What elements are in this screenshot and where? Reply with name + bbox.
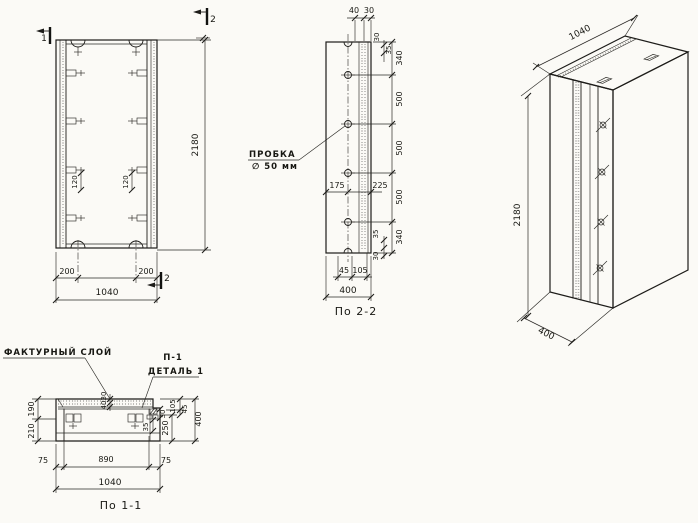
section-cut-mark-2-top: 2 bbox=[193, 8, 216, 41]
dim-loop-offset-left: 200 bbox=[59, 267, 74, 276]
plug-label-line1: ПРОБКА bbox=[249, 150, 296, 160]
dim-section-width: 400 bbox=[339, 286, 356, 296]
detail-name-label: ДЕТАЛЬ 1 bbox=[148, 367, 204, 377]
facing-layer-callout: ФАКТУРНЫЙ СЛОЙ bbox=[3, 346, 112, 399]
dim-bottom-75-right: 75 bbox=[161, 456, 171, 465]
dim-bottom-45: 45 bbox=[339, 266, 349, 275]
dim-layer-40: 40 bbox=[100, 401, 108, 410]
dim-left-210: 210 bbox=[27, 423, 36, 438]
dim-right-45: 45 bbox=[181, 405, 189, 414]
dim-mid-175: 175 bbox=[329, 181, 344, 190]
section-cut-mark-1: 1 bbox=[36, 27, 50, 44]
dim-right-total: 400 bbox=[194, 411, 203, 426]
section-1-1-layer-dims: 30 40 bbox=[100, 392, 113, 411]
dim-edge-top-30: 30 bbox=[373, 33, 381, 42]
iso-dims: 1040 2180 400 bbox=[513, 15, 638, 346]
dim-right-105: 105 bbox=[169, 399, 177, 412]
dim-layer-30: 30 bbox=[100, 392, 108, 401]
section-mark-1-label: 1 bbox=[41, 34, 47, 44]
dim-bottom-75-left: 75 bbox=[38, 456, 48, 465]
dim-detail-30: 30 bbox=[159, 410, 167, 419]
section-mark-2-bottom-label: 2 bbox=[164, 274, 170, 284]
dim-left-190: 190 bbox=[27, 401, 36, 416]
drawing-svg: 120 120 1 2 2 bbox=[0, 0, 698, 523]
detail-ref-label: П-1 bbox=[163, 353, 183, 363]
dim-layer-30: 30 bbox=[364, 6, 374, 15]
dim-right-250: 250 bbox=[161, 420, 170, 435]
isometric-view: 1040 2180 400 bbox=[513, 15, 688, 346]
chain-dim-340-top: 340 bbox=[395, 50, 404, 65]
section-2-2-top-dims: 40 30 30 35 bbox=[347, 6, 393, 62]
section-1-1-bottom-dims: 75 890 75 1040 bbox=[38, 436, 171, 493]
section-2-2-view: ПРОБКА ∅ 50 мм 40 30 30 35 bbox=[248, 6, 404, 318]
dim-front-width: 1040 bbox=[96, 288, 119, 298]
section-2-2-body bbox=[326, 34, 371, 262]
dim-iso-width: 1040 bbox=[568, 23, 593, 42]
iso-plug-marks bbox=[593, 118, 610, 275]
dim-layer-40: 40 bbox=[349, 6, 359, 15]
dim-bottom-105: 105 bbox=[352, 266, 367, 275]
section-1-1-caption: По 1-1 bbox=[100, 499, 142, 512]
section-1-1-left-dims: 190 210 bbox=[27, 396, 56, 444]
dim-bottom-total: 1040 bbox=[99, 478, 122, 488]
section-2-2-bottom-edge-dims: 35 30 bbox=[372, 230, 387, 261]
iso-joint-groove bbox=[573, 80, 598, 304]
dim-edge-bottom-35: 35 bbox=[372, 230, 380, 239]
section-2-2-bottom-dims: 45 105 400 bbox=[323, 253, 374, 301]
dim-iso-depth: 400 bbox=[536, 326, 556, 343]
front-view-bottom-dims: 200 200 1040 bbox=[53, 252, 160, 303]
dim-front-height: 2180 bbox=[191, 133, 201, 156]
front-view-height-dim: 2180 bbox=[157, 37, 211, 253]
section-2-2-right-chain: 340 500 500 500 340 bbox=[352, 39, 404, 256]
plug-callout: ПРОБКА ∅ 50 мм bbox=[248, 126, 345, 172]
front-view: 120 120 1 2 2 bbox=[36, 8, 216, 303]
dim-edge-bottom-30: 30 bbox=[372, 252, 380, 261]
dim-lug-left: 120 bbox=[71, 175, 79, 188]
dim-lug-right: 120 bbox=[122, 175, 130, 188]
plug-label-line2: ∅ 50 мм bbox=[252, 162, 298, 172]
front-view-lug-dims: 120 120 bbox=[71, 170, 135, 193]
facing-layer-label: ФАКТУРНЫЙ СЛОЙ bbox=[4, 346, 112, 358]
dim-loop-offset-right: 200 bbox=[138, 267, 153, 276]
front-view-side-lugs bbox=[66, 70, 147, 221]
dim-mid-225: 225 bbox=[372, 181, 387, 190]
chain-dim-340-bottom: 340 bbox=[395, 229, 404, 244]
section-mark-2-top-label: 2 bbox=[210, 15, 216, 25]
chain-dim-500-1: 500 bbox=[395, 91, 404, 106]
dim-bottom-890: 890 bbox=[98, 455, 113, 464]
section-2-2-mid-dims: 175 225 bbox=[323, 181, 388, 195]
blueprint-panel-drawing: 120 120 1 2 2 bbox=[0, 0, 698, 523]
iso-panel-body bbox=[550, 36, 688, 308]
chain-dim-500-2: 500 bbox=[395, 140, 404, 155]
section-2-2-caption: По 2-2 bbox=[335, 305, 377, 318]
chain-dim-500-3: 500 bbox=[395, 189, 404, 204]
dim-iso-height: 2180 bbox=[513, 203, 523, 226]
front-view-lifting-loops bbox=[71, 40, 143, 283]
section-1-1-view: 30 35 30 40 ФАКТУРНЫЙ СЛОЙ П-1 ДЕТАЛЬ 1 bbox=[3, 346, 204, 512]
section-1-1-lugs bbox=[66, 414, 143, 429]
front-view-panel-outline bbox=[56, 40, 157, 248]
section-1-1-right-dims: 105 45 250 400 bbox=[160, 396, 203, 444]
dim-detail-35: 35 bbox=[142, 423, 150, 432]
